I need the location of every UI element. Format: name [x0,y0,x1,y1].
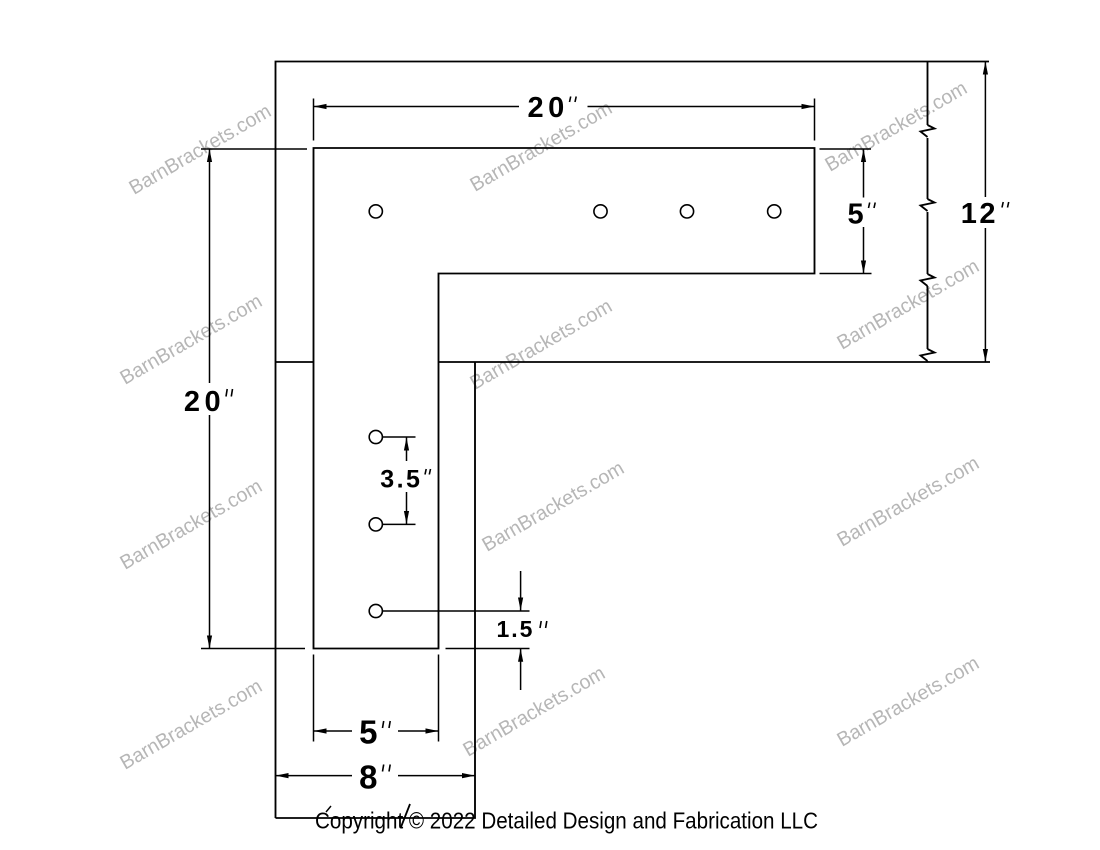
svg-text:8: 8 [359,758,377,795]
svg-text:5: 5 [848,198,864,230]
svg-text:20: 20 [184,386,225,418]
svg-text:1.5: 1.5 [497,616,535,642]
svg-text:12: 12 [961,198,998,230]
svg-text:3.5: 3.5 [380,466,422,494]
svg-text:20: 20 [528,92,569,124]
svg-text:5: 5 [359,714,377,751]
svg-text:Copyright © 2022 Detailed Desi: Copyright © 2022 Detailed Design and Fab… [315,808,818,834]
